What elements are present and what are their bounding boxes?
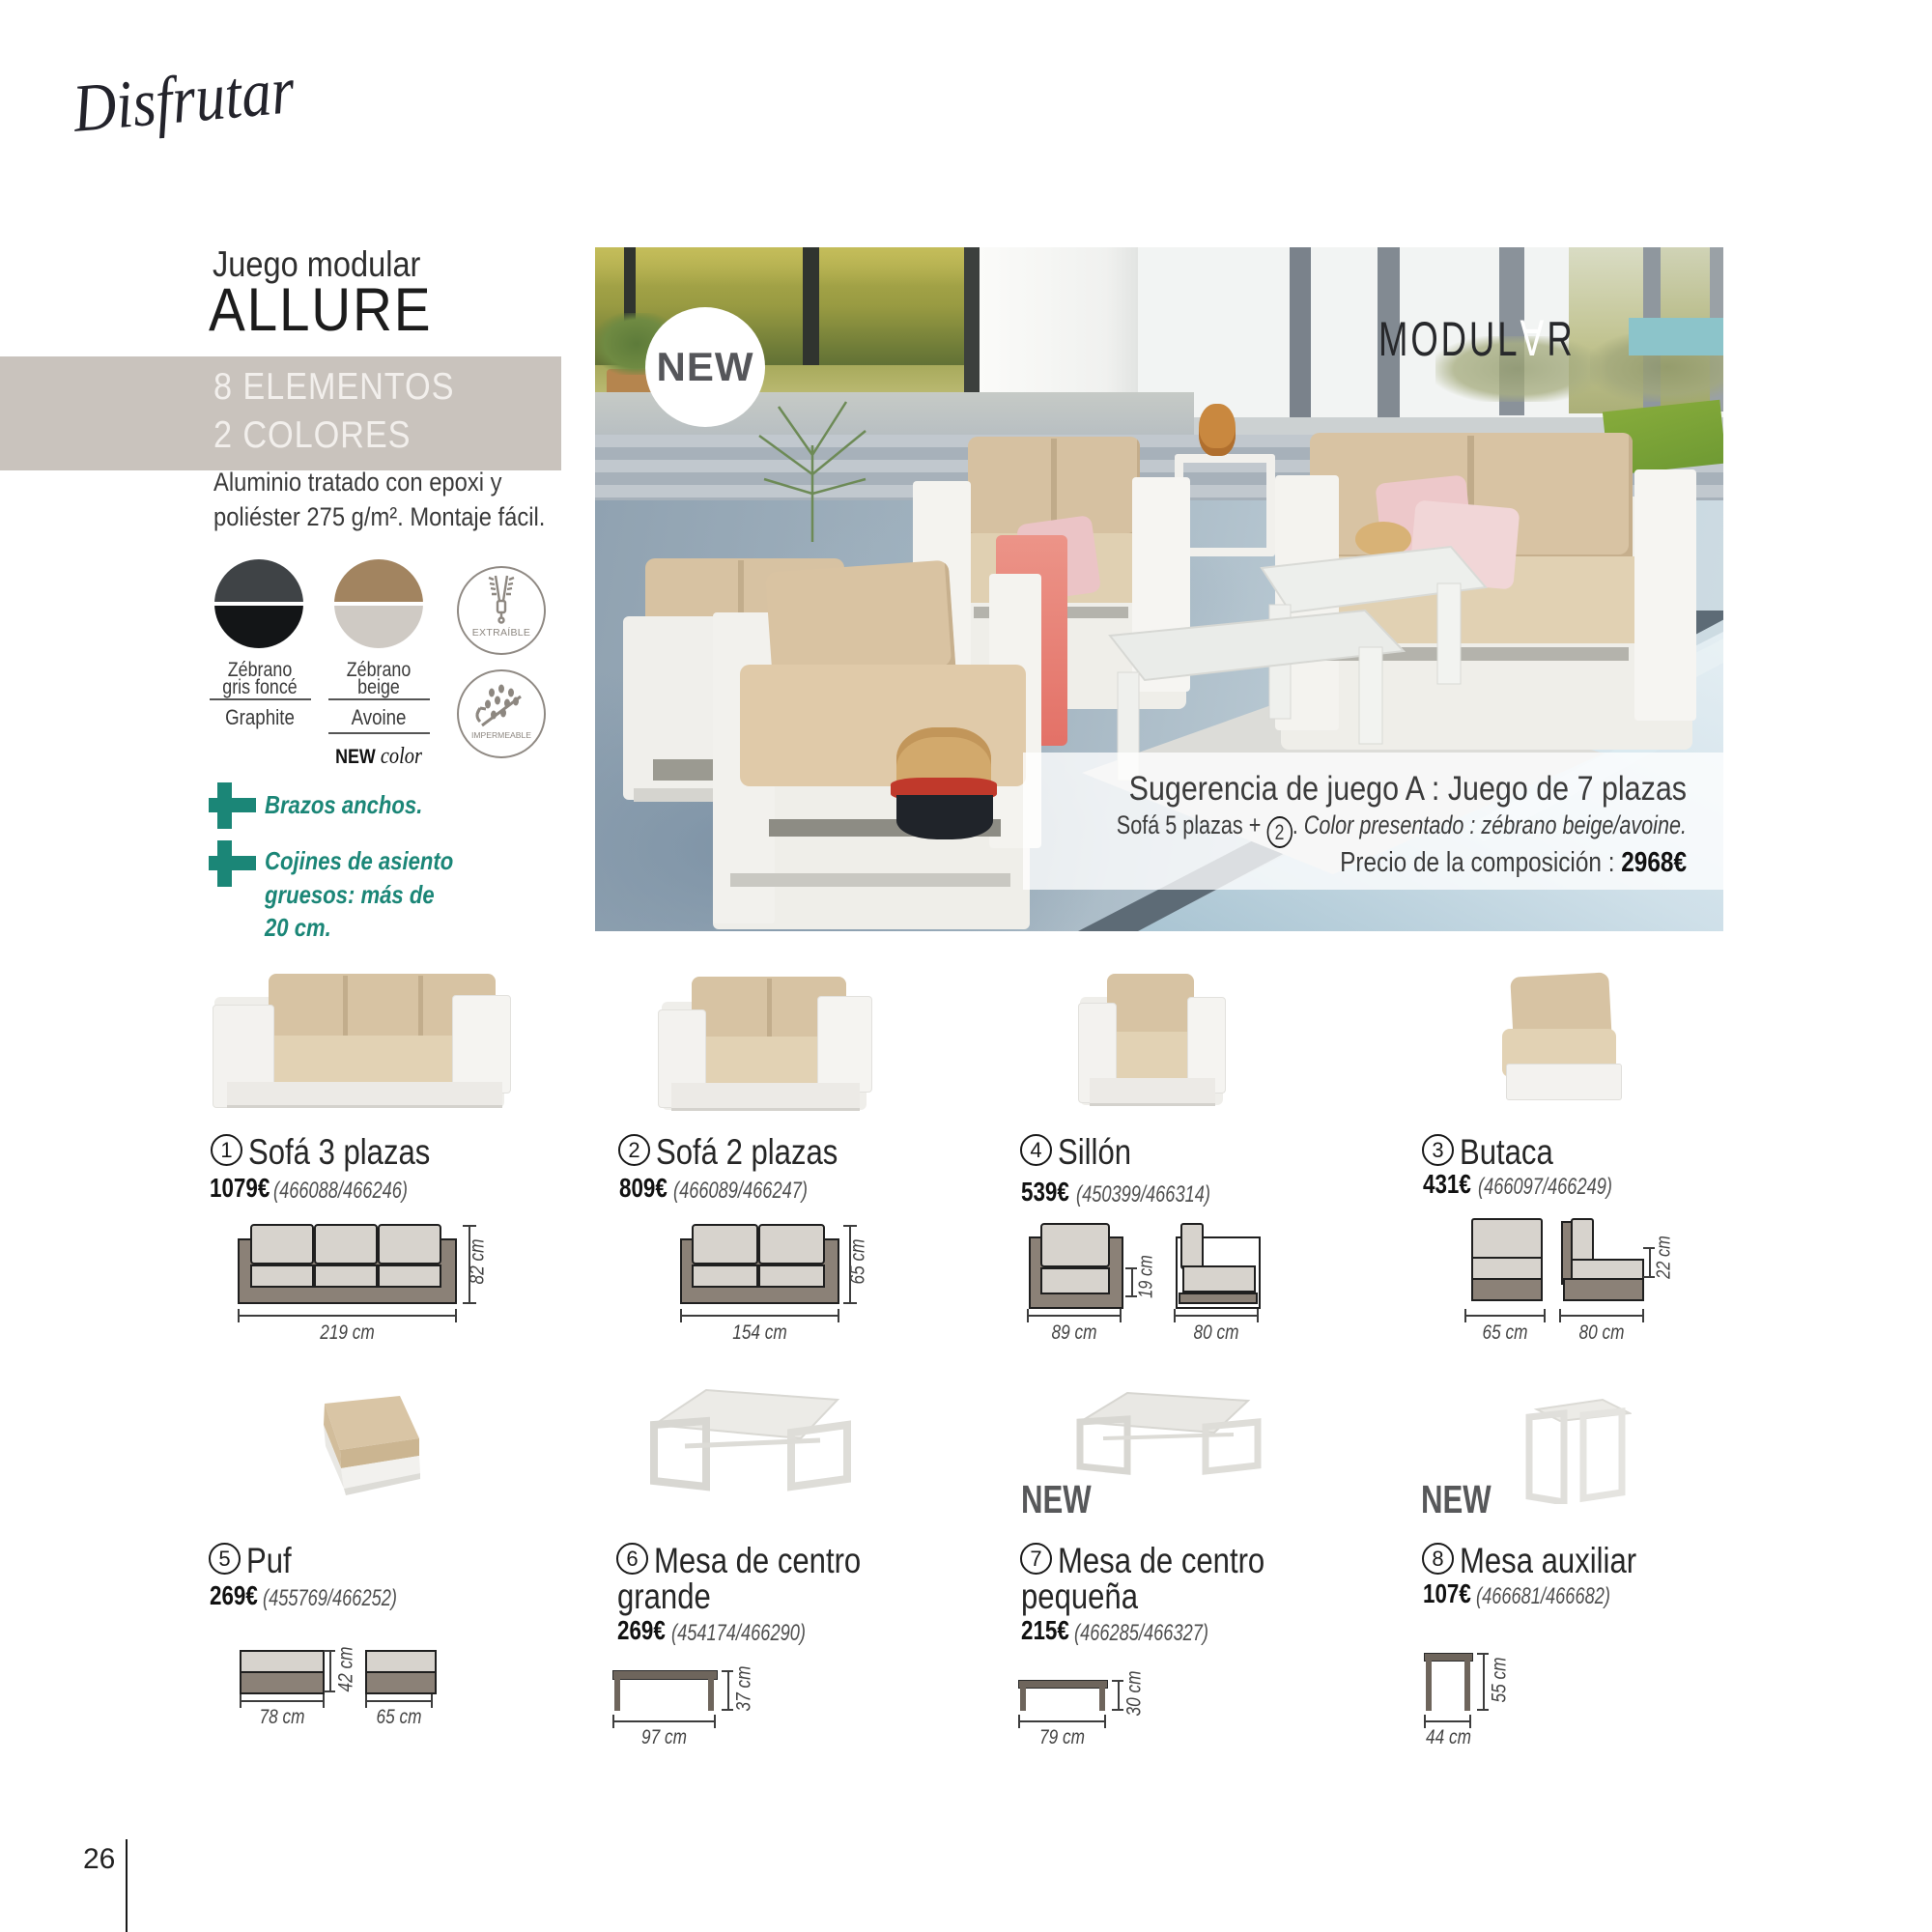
svg-text:EXTRAÍBLE: EXTRAÍBLE (472, 626, 530, 639)
svg-text:IMPERMEABLE: IMPERMEABLE (471, 730, 531, 740)
